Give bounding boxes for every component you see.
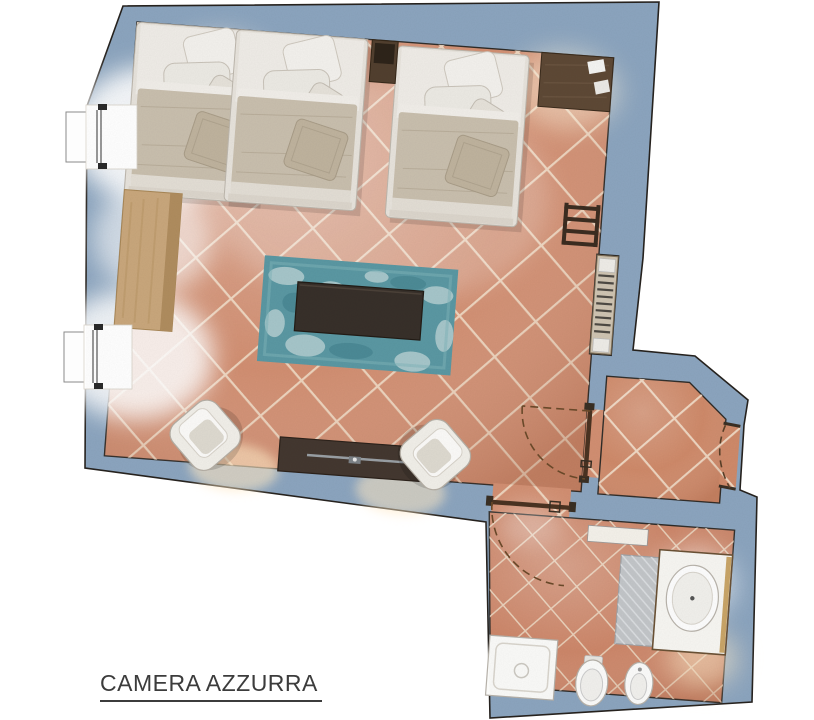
- texture-noise: [0, 0, 814, 720]
- floor-plan-drawing: [0, 0, 814, 720]
- floor-plan-page: CAMERA AZZURRA: [0, 0, 814, 720]
- plan-title: CAMERA AZZURRA: [100, 670, 322, 702]
